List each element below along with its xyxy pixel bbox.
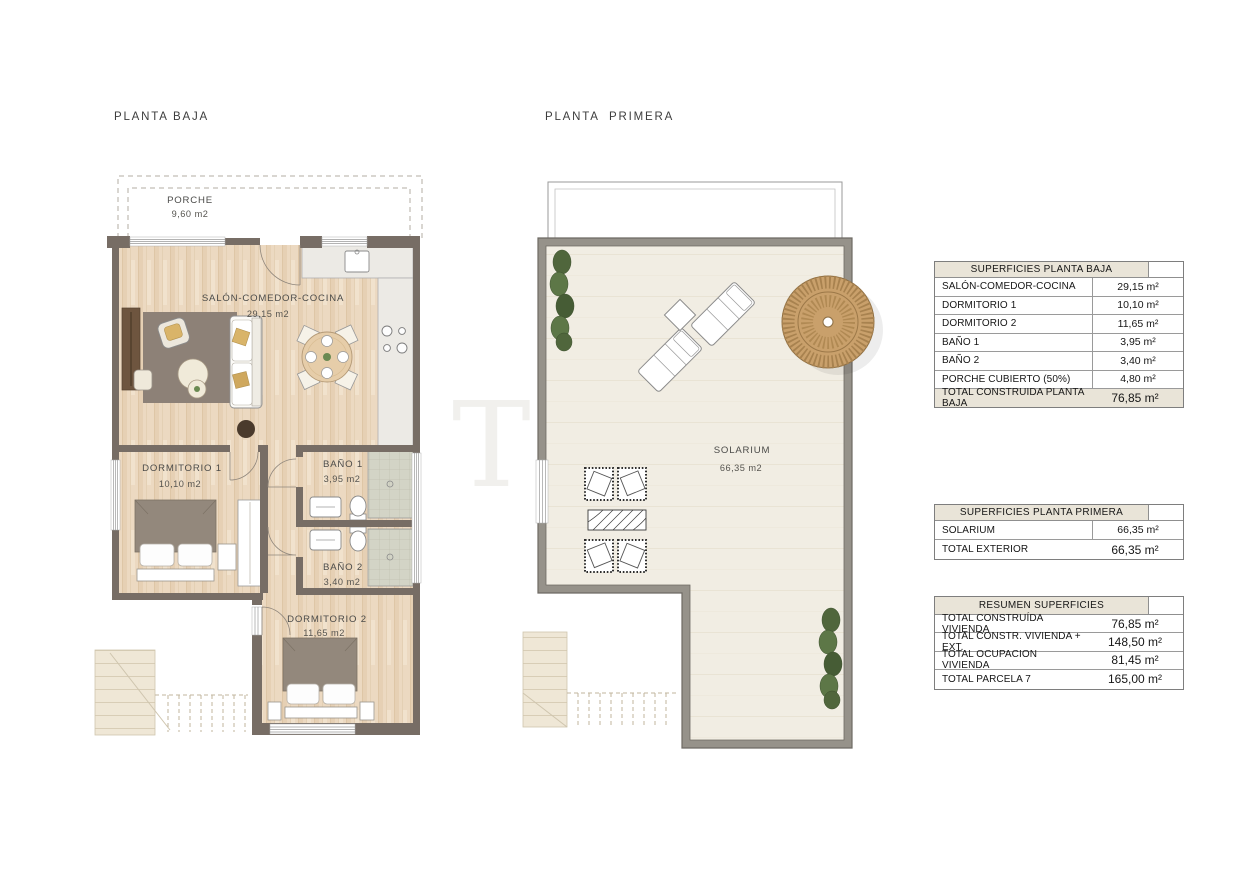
table-row: TOTAL OCUPACION VIVIENDA 81,45 m² xyxy=(935,652,1183,670)
resumen-superficies-table: RESUMEN SUPERFICIES TOTAL CONSTRUÍDA VIV… xyxy=(934,596,1184,690)
table-row: BAÑO 1 3,95 m² xyxy=(935,334,1183,353)
window-icon xyxy=(536,460,548,523)
table-row: DORMITORIO 1 10,10 m² xyxy=(935,297,1183,316)
planta-primera-floorplan: SOLARIUM 66,35 m2 xyxy=(515,170,885,770)
solarium-area: 66,35 m2 xyxy=(720,463,762,473)
nightstand-icon xyxy=(268,702,281,720)
roof-outline xyxy=(548,182,842,246)
table-row: SALÓN-COMEDOR-COCINA 29,15 m² xyxy=(935,278,1183,297)
window-icon xyxy=(322,237,367,246)
sofa-icon xyxy=(230,316,262,408)
dining-set-icon xyxy=(297,325,358,390)
stool-icon xyxy=(134,370,152,390)
chair-icon xyxy=(585,540,613,572)
porch-outline xyxy=(118,176,422,238)
planta-baja-floorplan: PORCHE 9,60 m2 xyxy=(90,170,435,770)
dormitorio2-area: 11,65 m2 xyxy=(303,628,345,638)
closet-icon xyxy=(238,500,262,586)
bano2-area: 3,40 m2 xyxy=(324,577,361,587)
plant-pot-icon xyxy=(237,420,255,438)
bano2-label: BAÑO 2 xyxy=(323,562,363,573)
table-header: SUPERFICIES PLANTA BAJA xyxy=(935,262,1183,278)
chair-icon xyxy=(585,468,613,500)
table-title: SUPERFICIES PLANTA BAJA xyxy=(935,262,1149,277)
bano1-label: BAÑO 1 xyxy=(323,459,363,470)
staircase xyxy=(523,632,678,727)
striped-mat-icon xyxy=(588,510,646,530)
table-title: SUPERFICIES PLANTA PRIMERA xyxy=(935,505,1149,520)
salon-label: SALÓN-COMEDOR-COCINA xyxy=(202,293,344,304)
floorplan-sheet: PLANTA BAJA PLANTA PRIMERA T xyxy=(0,0,1259,888)
dormitorio1-area: 10,10 m2 xyxy=(159,479,201,489)
window-icon xyxy=(130,237,225,246)
chair-icon xyxy=(618,540,646,572)
bano1-area: 3,95 m2 xyxy=(324,474,361,484)
table-row: BAÑO 2 3,40 m² xyxy=(935,352,1183,371)
window-icon xyxy=(270,724,355,734)
dormitorio2-label: DORMITORIO 2 xyxy=(287,614,367,625)
porch-area: 9,60 m2 xyxy=(172,209,209,219)
table-header: SUPERFICIES PLANTA PRIMERA xyxy=(935,505,1183,521)
table-total-row: TOTAL EXTERIOR 66,35 m² xyxy=(935,540,1183,559)
superficies-planta-baja-table: SUPERFICIES PLANTA BAJA SALÓN-COMEDOR-CO… xyxy=(934,261,1184,408)
window-icon xyxy=(111,460,120,530)
shower-icon xyxy=(368,529,413,586)
chair-icon xyxy=(618,468,646,500)
salon-area: 29,15 m2 xyxy=(247,309,289,319)
table-total-row: TOTAL CONSTRUIDA PLANTA BAJA 76,85 m² xyxy=(935,389,1183,407)
planta-primera-title: PLANTA PRIMERA xyxy=(545,111,674,123)
solarium-label: SOLARIUM xyxy=(714,445,771,456)
window-icon xyxy=(412,453,421,583)
table-row: DORMITORIO 2 11,65 m² xyxy=(935,315,1183,334)
table-title: RESUMEN SUPERFICIES xyxy=(935,597,1149,614)
porch-label: PORCHE xyxy=(167,195,213,206)
table-row: SOLARIUM 66,35 m² xyxy=(935,521,1183,540)
superficies-planta-primera-table: SUPERFICIES PLANTA PRIMERA SOLARIUM 66,3… xyxy=(934,504,1184,560)
nightstand-icon xyxy=(360,702,374,720)
dormitorio1-label: DORMITORIO 1 xyxy=(142,463,222,474)
nightstand-icon xyxy=(218,544,236,570)
staircase xyxy=(95,650,248,735)
window-icon xyxy=(252,607,262,635)
planta-baja-title: PLANTA BAJA xyxy=(114,111,209,123)
shower-icon xyxy=(368,451,413,518)
table-row: TOTAL PARCELA 7 165,00 m² xyxy=(935,670,1183,688)
